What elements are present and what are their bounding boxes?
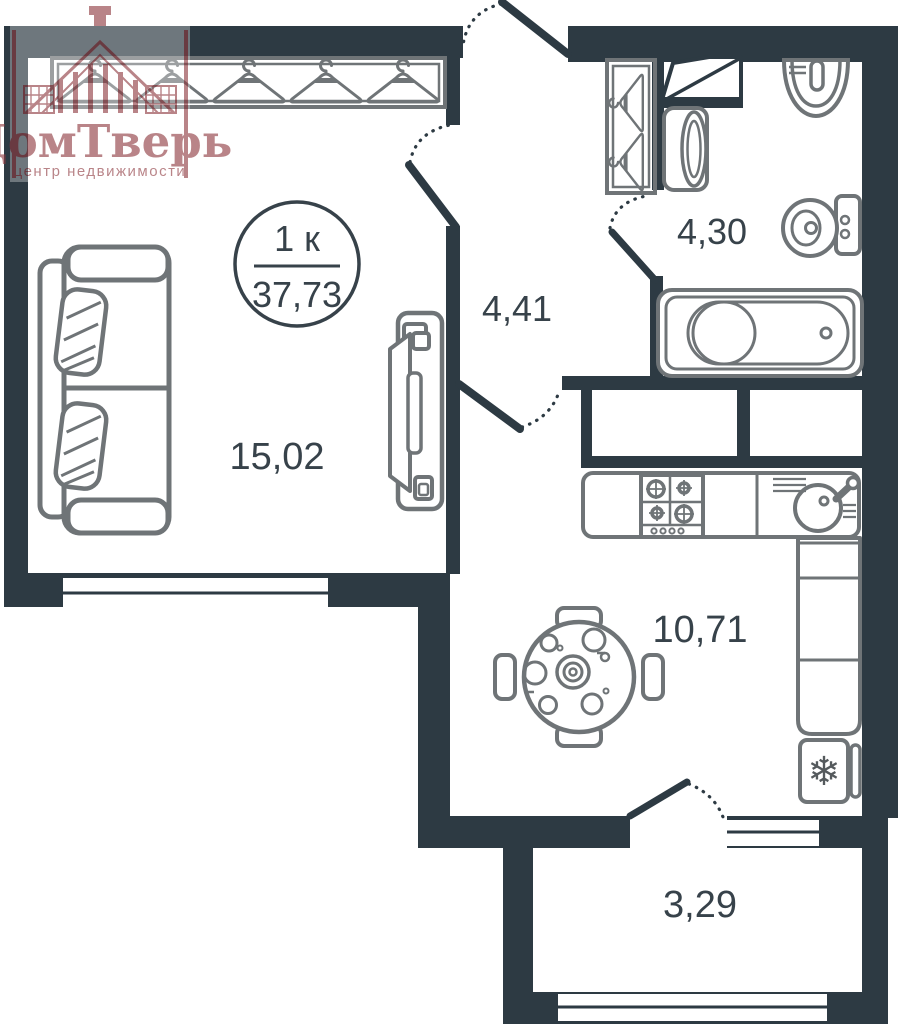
bathroom-door xyxy=(610,196,655,280)
apartment-badge: 1 к 37,73 xyxy=(235,202,359,326)
wall-living-right-upper xyxy=(446,58,460,125)
hanger-icon xyxy=(291,60,361,102)
kitchen-area-label: 10,71 xyxy=(652,609,747,651)
living-room-area-label: 15,02 xyxy=(229,436,324,478)
wall-living-right-lower xyxy=(446,226,460,574)
wall-right xyxy=(862,26,898,818)
entrance-door-swing-arc xyxy=(463,4,501,45)
kitchen-door xyxy=(459,384,559,429)
bathroom-door-swing-arc xyxy=(610,196,646,228)
balcony-area-label: 3,29 xyxy=(663,884,737,926)
wall-shaft-bottom xyxy=(581,456,862,468)
bathroom-open-door-panel xyxy=(661,57,743,108)
hallway-area-label: 4,41 xyxy=(482,288,552,329)
floor-plan: ❄ 15,02 4,41 4,30 10,71 3,29 xyxy=(0,0,898,1024)
wall-shaft-left xyxy=(581,390,592,460)
chair-icon xyxy=(643,655,663,699)
living-door-swing-arc xyxy=(410,125,450,162)
toilet-icon xyxy=(783,196,860,256)
floor-plan-page: ❄ 15,02 4,41 4,30 10,71 3,29 xyxy=(0,0,898,1024)
chair-icon xyxy=(495,655,515,699)
bathtub-icon xyxy=(658,290,862,376)
balcony-window xyxy=(558,994,827,1021)
wall-shaft-mid xyxy=(737,376,750,468)
washing-machine-icon xyxy=(664,108,707,190)
badge-total-area: 37,73 xyxy=(252,274,342,315)
sofa-cushion xyxy=(54,288,108,377)
kitchen-door-swing-arc xyxy=(522,392,559,427)
fridge-icon: ❄ xyxy=(800,740,860,802)
wall-kitchen-left xyxy=(418,598,450,816)
snowflake-icon: ❄ xyxy=(807,750,841,794)
hanger-icon xyxy=(214,60,284,102)
logo-brand-text: ДомТверь xyxy=(0,115,232,168)
sofa-icon xyxy=(40,247,169,533)
stove-icon xyxy=(641,475,703,537)
wall-shaft-top xyxy=(562,376,862,390)
bathroom-area-label: 4,30 xyxy=(677,211,747,252)
kitchen-balcony-window xyxy=(727,820,819,846)
hanger-icon xyxy=(368,60,438,102)
logo-tagline-text: центр недвижимости xyxy=(14,163,187,180)
entrance-door xyxy=(463,2,568,54)
balcony-door-swing-arc xyxy=(689,784,725,823)
dining-table-icon xyxy=(495,608,663,746)
living-room-door xyxy=(409,125,456,227)
living-room-window xyxy=(63,578,328,607)
hall-wardrobe-icon xyxy=(607,60,655,193)
sofa-cushion xyxy=(54,402,108,491)
badge-rooms-label: 1 к xyxy=(274,218,320,259)
wall-kitchen-bottom xyxy=(418,816,630,848)
bathroom-sink-icon xyxy=(784,60,848,116)
balcony-door xyxy=(630,782,725,823)
tv-icon xyxy=(390,313,442,509)
